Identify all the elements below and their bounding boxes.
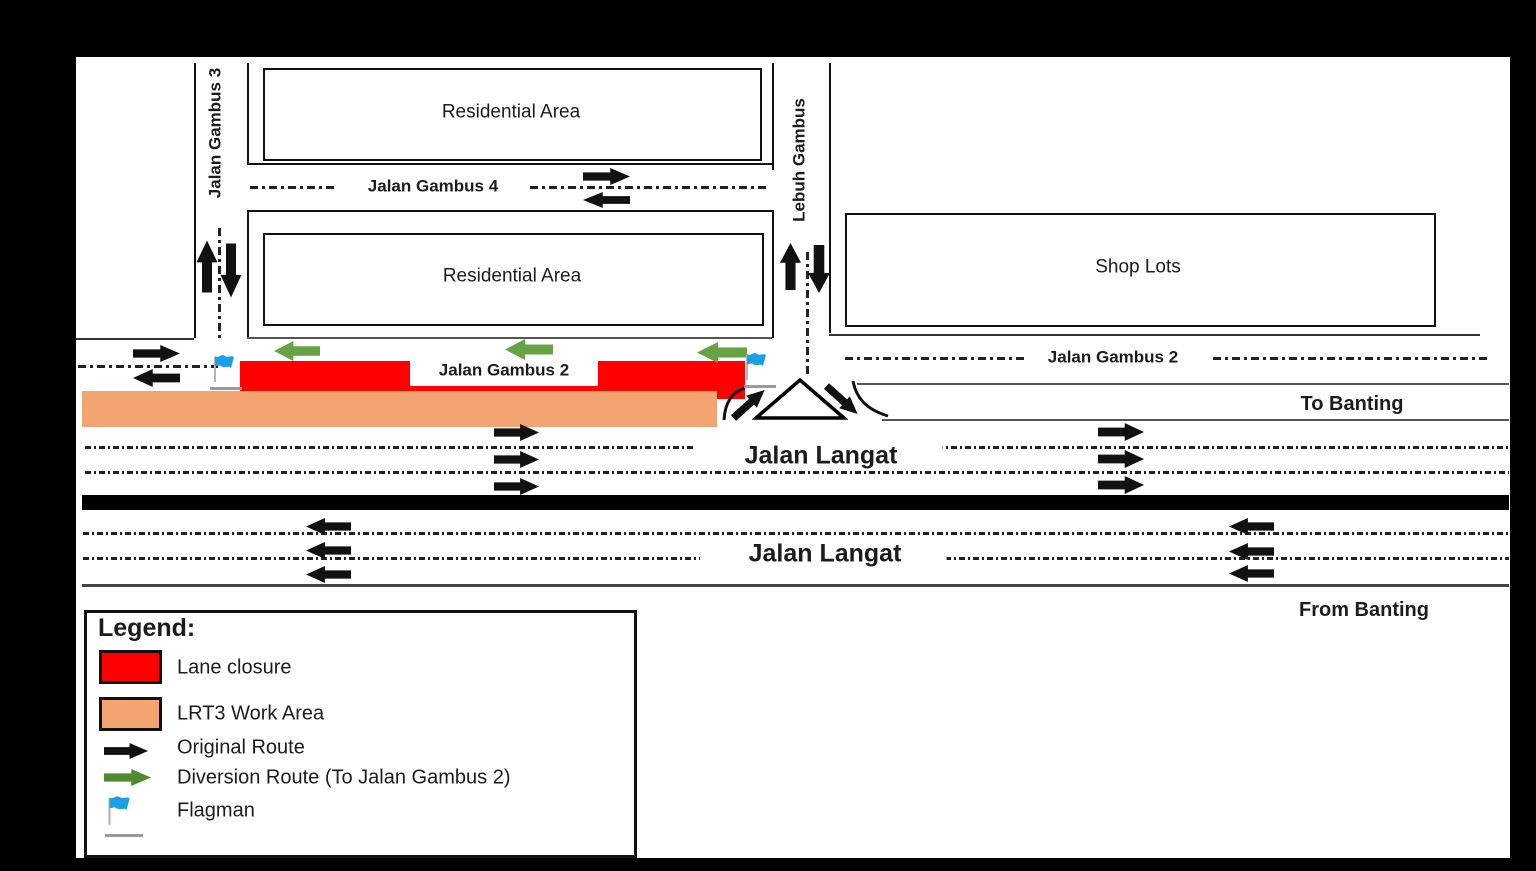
residential-area-1-label: Residential Area [442,103,580,124]
road-edge [82,584,1509,587]
junction-kerb-curves [700,370,900,425]
legend-item-flagman: Flagman [177,800,255,823]
road-edge [772,63,774,170]
lrt3-work-area-zone [82,391,717,427]
flagman-icon [742,350,768,382]
road-edge [247,337,772,339]
flagman-stand [744,385,776,388]
jalan-gambus-2-east-centerline [845,357,1035,360]
jalan-gambus-4-centerline [250,186,335,189]
flagman-icon [210,352,236,384]
jalan-gambus-4-centerline [530,186,770,189]
lane-closure-swatch [99,650,162,684]
road-edge [857,383,1509,385]
road-edge [76,338,194,340]
lane-divider [83,557,700,560]
flagman-stand [210,387,242,390]
road-edge [829,63,831,333]
lane-divider [85,471,1509,474]
legend-item-diversion-route: Diversion Route (To Jalan Gambus 2) [177,767,510,790]
road-edge [772,210,774,338]
lebuh-gambus-centerline [806,252,809,374]
jalan-gambus-3-label: Jalan Gambus 3 [207,68,226,198]
jalan-gambus-2-east-label: Jalan Gambus 2 [1028,349,1198,368]
jalan-gambus-2-west-label: Jalan Gambus 2 [439,362,569,381]
lebuh-gambus-label: Lebuh Gambus [791,98,810,222]
lane-divider [83,532,1509,535]
road-edge [247,210,772,212]
road-edge [247,210,249,338]
flagman-swatch-icon [104,793,132,827]
legend-box [84,610,637,858]
residential-area-2-label: Residential Area [443,267,581,288]
jalan-gambus-3-centerline [218,228,221,340]
road-edge [247,163,772,165]
lane-divider [945,557,1509,560]
road-edge [194,63,196,338]
from-banting-label: From Banting [1299,599,1429,621]
shop-lots-label: Shop Lots [1095,258,1181,279]
lrt3-work-area-swatch [99,697,162,731]
jalan-gambus-2-east-centerline [1213,357,1491,360]
jalan-gambus-2-west-centerline [78,365,218,368]
legend-item-original-route: Original Route [177,737,305,760]
to-banting-label: To Banting [1301,393,1404,415]
diversion-map: Residential Area Residential Area Shop L… [0,0,1536,871]
lane-divider [85,446,693,449]
road-edge [829,334,1480,336]
legend-title: Legend: [98,614,195,643]
legend-item-lrt3-work-area: LRT3 Work Area [177,703,324,726]
jalan-langat-westbound-label: Jalan Langat [704,540,947,568]
road-edge [247,63,249,163]
legend-item-lane-closure: Lane closure [177,657,292,680]
jalan-gambus-4-label: Jalan Gambus 4 [342,178,524,197]
road-edge [882,419,1509,421]
jalan-langat-eastbound-label: Jalan Langat [700,442,943,470]
lane-divider [937,446,1509,449]
flagman-swatch-stand [105,834,143,837]
median-bar [82,495,1509,510]
